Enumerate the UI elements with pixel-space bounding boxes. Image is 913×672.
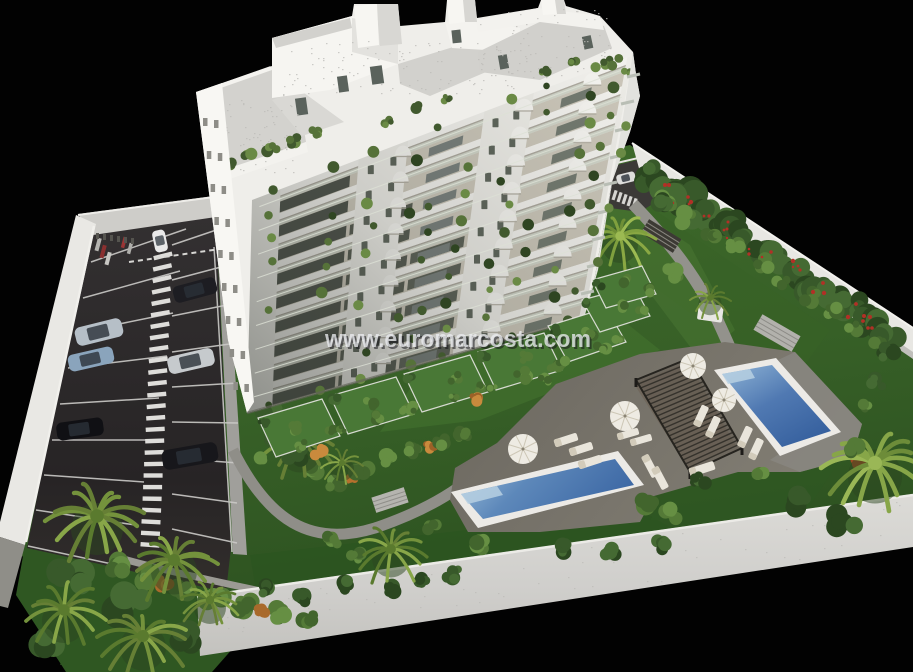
svg-text:www.euromarcosta.com: www.euromarcosta.com xyxy=(324,326,591,353)
